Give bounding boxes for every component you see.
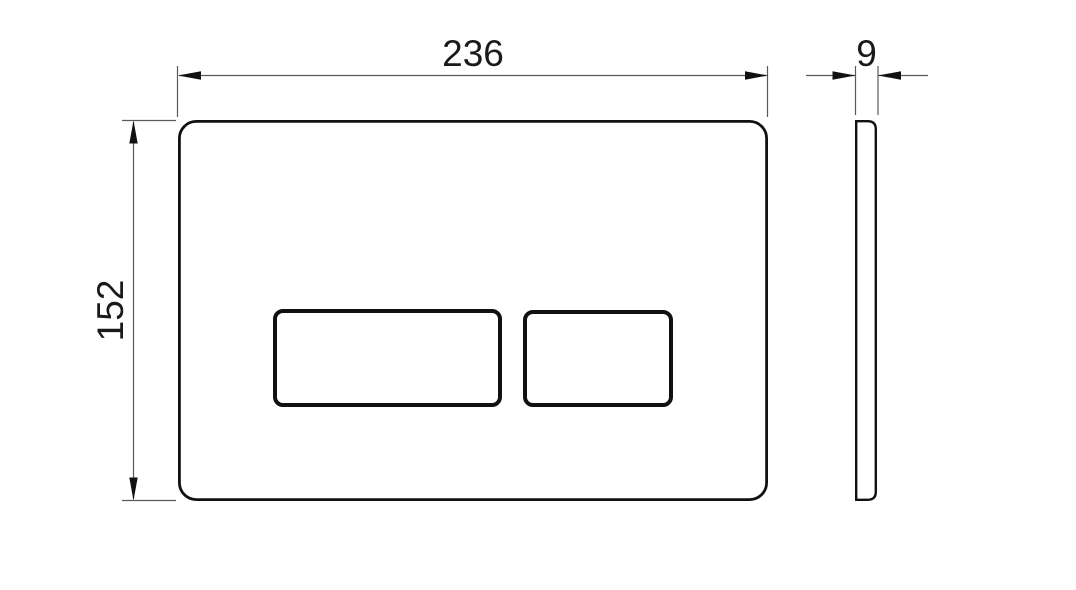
arrow-right-icon — [833, 71, 856, 80]
large-flush-button — [275, 311, 500, 405]
height-dimension: 152 — [90, 121, 176, 501]
width-dimension-label: 236 — [442, 33, 504, 74]
arrow-right-icon — [745, 71, 768, 80]
height-dimension-label: 152 — [90, 280, 131, 342]
flush-plate-dimension-drawing: 236 152 9 — [0, 0, 1076, 590]
technical-drawing-canvas: 236 152 9 — [0, 0, 1076, 590]
plate-side-profile — [856, 121, 876, 500]
arrow-left-icon — [878, 71, 901, 80]
arrow-left-icon — [178, 71, 201, 80]
width-dimension: 236 — [178, 33, 769, 117]
side-view — [856, 121, 876, 500]
small-flush-button — [525, 312, 671, 405]
thickness-dimension: 9 — [806, 33, 928, 115]
arrow-down-icon — [129, 478, 137, 501]
front-view — [179, 121, 766, 499]
arrow-up-icon — [129, 121, 137, 144]
thickness-dimension-label: 9 — [856, 33, 877, 74]
